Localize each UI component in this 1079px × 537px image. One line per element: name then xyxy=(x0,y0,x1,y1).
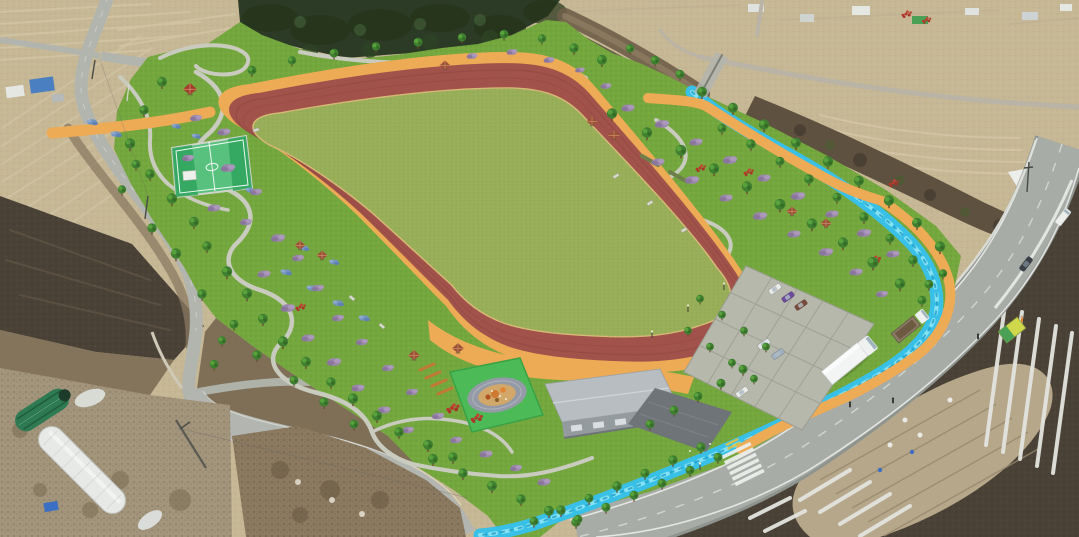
aerial-photomontage xyxy=(0,0,1079,537)
worker xyxy=(1021,316,1023,322)
court-shed xyxy=(183,170,197,180)
gray-shed xyxy=(52,93,65,103)
basketball-court xyxy=(172,136,252,197)
screenshot-canvas xyxy=(0,0,1079,537)
